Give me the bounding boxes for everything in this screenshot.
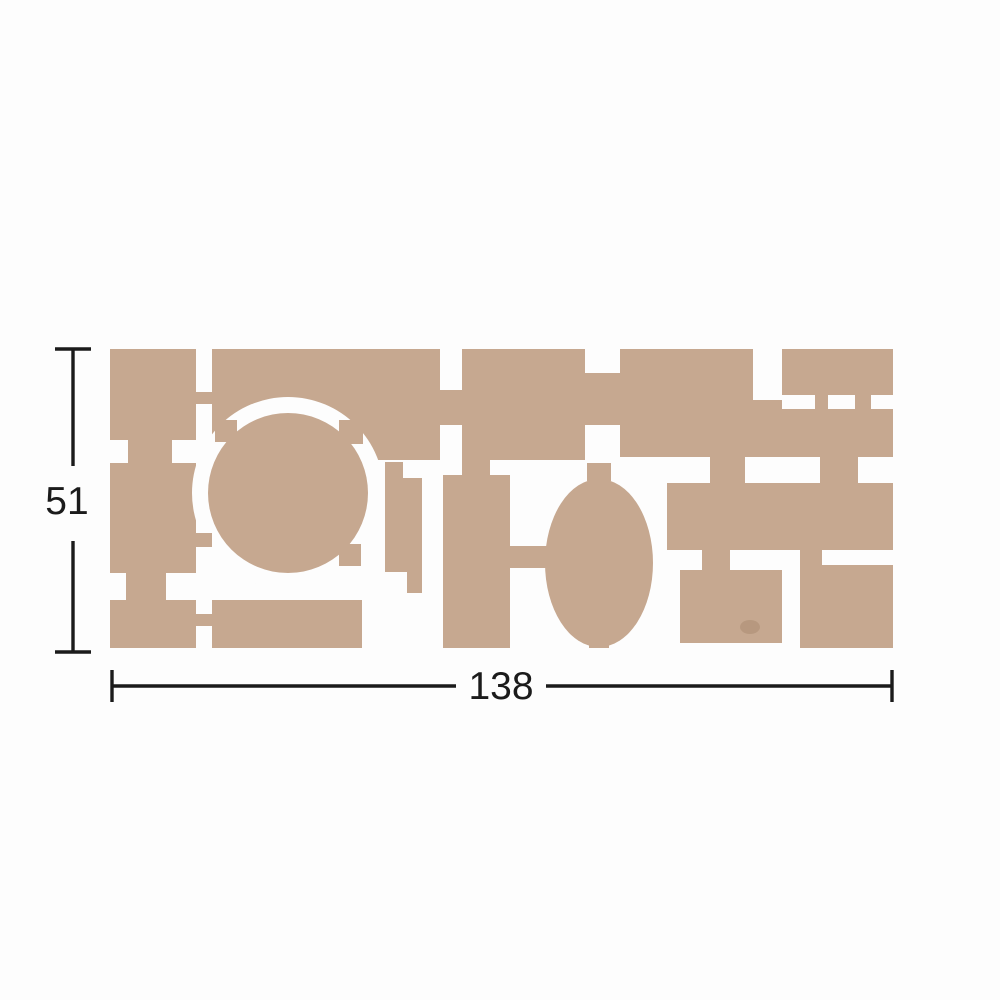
cutout-notch — [198, 548, 230, 585]
cutout-notch — [228, 587, 366, 600]
sheet-piece-oval — [545, 479, 653, 647]
sheet-tab — [215, 420, 237, 442]
sheet-connector — [753, 400, 782, 457]
width-dimension-label: 138 — [454, 666, 548, 708]
product-dimension-diagram: 51 138 — [0, 0, 1000, 1000]
sheet-tab — [462, 460, 490, 475]
sheet-tab — [339, 420, 363, 444]
sheet-tab — [196, 392, 212, 404]
sheet-tab — [587, 463, 611, 481]
sheet-piece-rect — [110, 349, 196, 440]
sheet-tab — [800, 550, 822, 565]
sheet-tab — [407, 572, 422, 593]
sheet-piece-rect — [620, 349, 753, 457]
sheet-tab — [339, 544, 361, 566]
sheet-tab — [385, 462, 403, 478]
sheet-tab — [710, 457, 745, 483]
sheet-tab — [702, 550, 730, 570]
sheet-tab — [128, 440, 172, 463]
sheet-tab — [585, 373, 620, 425]
sheet-piece-rect — [110, 463, 196, 573]
wood-knot-mark — [740, 620, 760, 634]
sheet-piece-rect — [110, 600, 196, 648]
mdf-craft-sheet — [110, 349, 893, 661]
sheet-piece-rect — [782, 349, 893, 395]
sheet-tab — [196, 614, 212, 626]
sheet-tab — [440, 390, 462, 425]
sheet-tab — [820, 457, 858, 483]
height-dimension-label: 51 — [36, 481, 98, 523]
sheet-piece-rect — [212, 600, 362, 648]
sheet-piece-rect — [443, 475, 510, 648]
sheet-tab — [589, 640, 609, 648]
sheet-tab — [855, 395, 871, 409]
sheet-tab — [126, 573, 166, 600]
sheet-piece-rect — [667, 483, 893, 550]
sheet-piece-rect — [385, 478, 422, 572]
sheet-tab — [508, 546, 548, 568]
diagram-canvas — [0, 0, 1000, 1000]
sheet-piece-rect — [680, 570, 782, 643]
sheet-piece-rect — [462, 349, 585, 460]
sheet-piece-rect — [782, 409, 893, 457]
sheet-tab — [815, 395, 828, 409]
sheet-tab — [196, 533, 212, 547]
sheet-piece-rect — [800, 565, 893, 648]
